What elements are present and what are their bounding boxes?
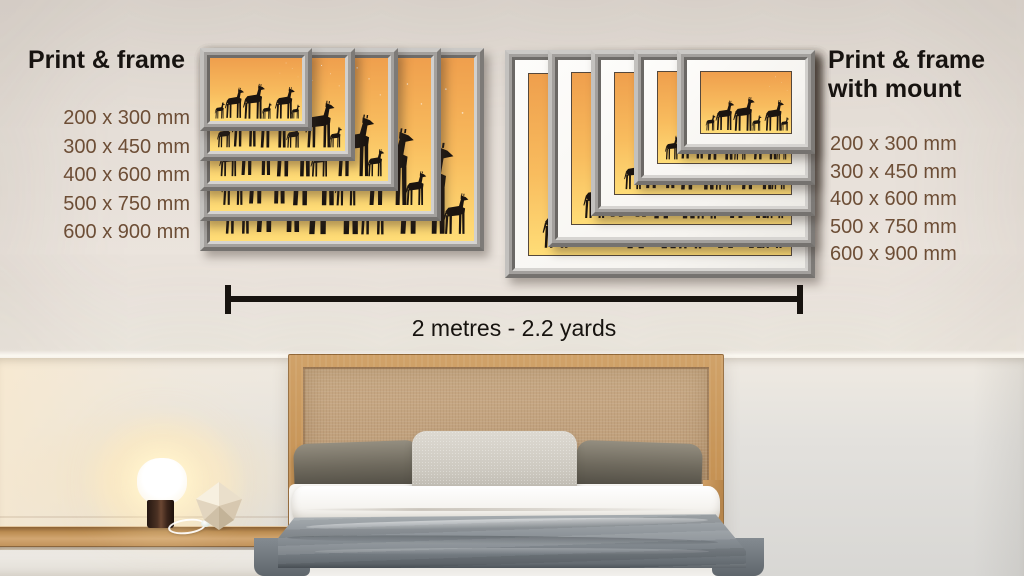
- size-label: 600 x 900 mm: [20, 218, 190, 247]
- blanket: [278, 512, 746, 568]
- size-label: 600 x 900 mm: [830, 241, 1010, 269]
- size-label: 300 x 450 mm: [830, 159, 1010, 187]
- size-label: 200 x 300 mm: [20, 104, 190, 133]
- giraffe-print-artwork: [700, 71, 792, 134]
- giraffe-print-artwork: [207, 55, 305, 124]
- sheet-crease: [300, 508, 705, 511]
- size-label: 400 x 600 mm: [830, 186, 1010, 214]
- blanket-fold-shadow: [287, 533, 718, 546]
- size-guide-poster: Print & frame Print & frame with mount 2…: [0, 0, 1024, 576]
- mount-board: [687, 60, 805, 144]
- size-label: 400 x 600 mm: [20, 161, 190, 190]
- size-label: 500 x 750 mm: [20, 190, 190, 219]
- left-size-list: 200 x 300 mm300 x 450 mm400 x 600 mm500 …: [20, 104, 190, 247]
- right-panel-title-line2: with mount: [828, 75, 1018, 104]
- left-panel-title: Print & frame: [28, 46, 198, 75]
- mounted-art: [684, 57, 808, 147]
- size-label: 300 x 450 mm: [20, 133, 190, 162]
- mounted-frame-200x300: [677, 50, 815, 154]
- scale-bar-left-tick: [225, 285, 231, 314]
- blanket-fold-highlight: [306, 515, 709, 531]
- size-label: 500 x 750 mm: [830, 214, 1010, 242]
- right-panel-title: Print & frame with mount: [828, 46, 1018, 104]
- right-panel-title-line1: Print & frame: [828, 46, 1018, 75]
- scale-bar-line: [228, 296, 800, 302]
- wall-seam-line: [0, 516, 290, 518]
- scale-bar-label: 2 metres - 2.2 yards: [228, 315, 800, 342]
- right-size-list: 200 x 300 mm300 x 450 mm400 x 600 mm500 …: [830, 131, 1010, 269]
- origami-ornament: [196, 482, 242, 530]
- scale-bar-right-tick: [797, 285, 803, 314]
- blanket-fold-highlight: [315, 548, 708, 555]
- size-label: 200 x 300 mm: [830, 131, 1010, 159]
- plain-frame-200x300: [200, 48, 312, 131]
- table-lamp-globe: [137, 458, 187, 505]
